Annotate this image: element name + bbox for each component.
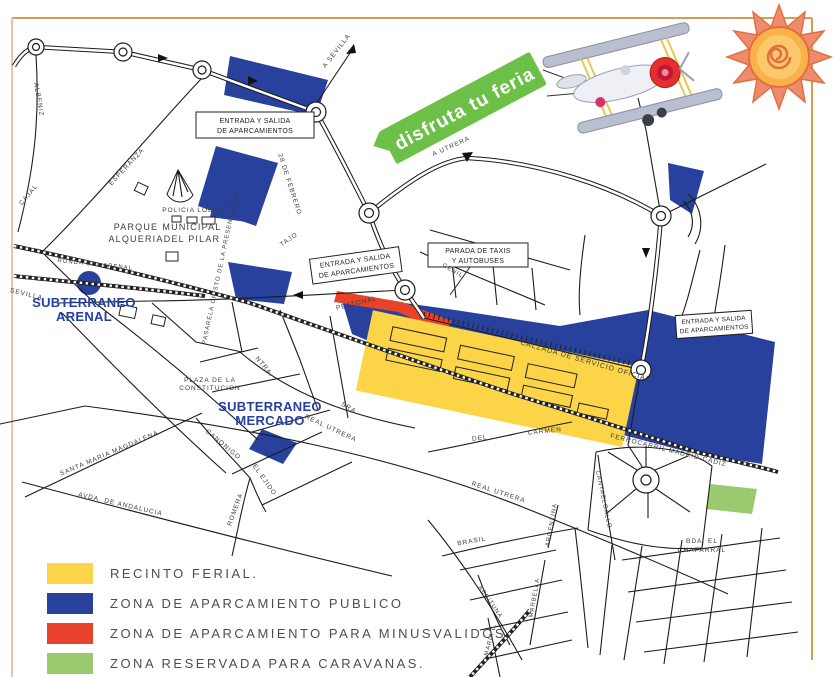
legend-row-parking: ZONA DE APARCAMIENTO PUBLICO bbox=[47, 593, 512, 614]
landmark-plaza-line1: PLAZA DE LA bbox=[184, 377, 236, 384]
street-label-cantaelgallo: CANTAELGALLO bbox=[594, 470, 612, 529]
legend-row-caravanas: ZONA RESERVADA PARA CARAVANAS. bbox=[47, 653, 512, 674]
feria-map-page: ENTRADA Y SALIDA DE APARCAMIENTOS ENTRAD… bbox=[0, 0, 835, 677]
street-label-28-de-febrero: 28 DE FEBRERO bbox=[276, 153, 303, 216]
landmark-policia-local: POLICIA LOCAL bbox=[162, 207, 223, 214]
sign-entrada-2: ENTRADA Y SALIDA DE APARCAMIENTOS bbox=[309, 247, 402, 284]
landmark-bda-line1: BDA. EL bbox=[686, 538, 718, 545]
street-label-avda-andalucia: AVDA. DE ANDALUCIA bbox=[77, 491, 163, 517]
street-label-santa-maria-magdalena: SANTA MARIA MAGDALENA bbox=[59, 430, 160, 478]
legend-row-minusvalidos: ZONA DE APARCAMIENTO PARA MINUSVALIDOS. bbox=[47, 623, 512, 644]
street-label-ronda-del-arenal: RONDA DEL ARENAL bbox=[57, 258, 133, 272]
street-label-real-utrera-1: REAL UTRERA bbox=[304, 414, 358, 444]
street-label-argentina: ARGENTINA bbox=[545, 503, 559, 547]
street-label-canonigo: CANONIGO bbox=[204, 428, 242, 461]
landmark-parque-line1: PARQUE bbox=[114, 222, 159, 232]
street-label-tajo: TAJO bbox=[279, 231, 300, 248]
landmark-bda-line2: CHAPARRAL bbox=[678, 547, 726, 554]
street-label-albeniz: ALBENIZ bbox=[32, 82, 45, 117]
sign-taxi-line2: Y AUTOBUSES bbox=[452, 258, 504, 265]
street-label-real-utrera-2: REAL UTRERA bbox=[471, 481, 527, 505]
biplane-illustration bbox=[542, 18, 725, 147]
street-label-cajal: CAJAL bbox=[18, 183, 40, 207]
street-label-el-ejido: EL EJIDO bbox=[251, 463, 278, 497]
legend: RECINTO FERIAL. ZONA DE APARCAMIENTO PUB… bbox=[47, 563, 512, 677]
zone-parking-northeast bbox=[668, 163, 704, 214]
legend-swatch-parking bbox=[47, 593, 93, 614]
legend-label-parking: ZONA DE APARCAMIENTO PUBLICO bbox=[110, 596, 403, 611]
landmark-subterraneo-mercado-line2: MERCADO bbox=[235, 413, 304, 428]
street-label-esperanza: ESPERANZA bbox=[108, 147, 146, 187]
street-label-del: DEL bbox=[472, 434, 488, 443]
sign-entrada-1-line2: DE APARCAMIENTOS bbox=[217, 128, 293, 135]
sign-entrada-1-line1: ENTRADA Y SALIDA bbox=[219, 118, 290, 125]
sun-illustration bbox=[727, 5, 831, 109]
sign-entrada-3: ENTRADA Y SALIDA DE APARCAMIENTOS bbox=[675, 310, 752, 338]
zone-caravanas bbox=[706, 484, 757, 514]
legend-label-recinto: RECINTO FERIAL. bbox=[110, 566, 259, 581]
landmark-municipal-line1: MUNICIPAL bbox=[162, 222, 221, 232]
landmark-subterraneo-arenal-line2: ARENAL bbox=[56, 309, 112, 324]
sign-entrada-1: ENTRADA Y SALIDA DE APARCAMIENTOS bbox=[196, 112, 314, 138]
street-label-brasil: BRASIL bbox=[457, 536, 487, 548]
banner-ribbon: disfruta tu feria bbox=[369, 52, 592, 170]
landmark-subterraneo-mercado-line1: SUBTERRANEO bbox=[218, 399, 322, 414]
legend-row-recinto: RECINTO FERIAL. bbox=[47, 563, 512, 584]
landmark-plaza-line2: CONSTITUCION bbox=[179, 385, 240, 392]
landmark-municipal-line2: DEL PILAR bbox=[164, 234, 221, 244]
legend-swatch-recinto bbox=[47, 563, 93, 584]
legend-label-minusvalidos: ZONA DE APARCAMIENTO PARA MINUSVALIDOS. bbox=[110, 626, 512, 641]
sign-taxi-line1: PARADA DE TAXIS bbox=[445, 248, 511, 255]
street-label-ntra: NTRA. bbox=[254, 355, 275, 378]
street-label-marbella: MARBELLA bbox=[529, 578, 542, 618]
legend-swatch-caravanas bbox=[47, 653, 93, 674]
landmark-parque-line2: ALQUERIA bbox=[108, 234, 163, 244]
landmark-subterraneo-arenal-line1: SUBTERRANEO bbox=[32, 295, 136, 310]
legend-swatch-minusvalidos bbox=[47, 623, 93, 644]
direction-label-a-sevilla: A SEVILLA bbox=[321, 33, 352, 70]
legend-label-caravanas: ZONA RESERVADA PARA CARAVANAS. bbox=[110, 656, 425, 671]
